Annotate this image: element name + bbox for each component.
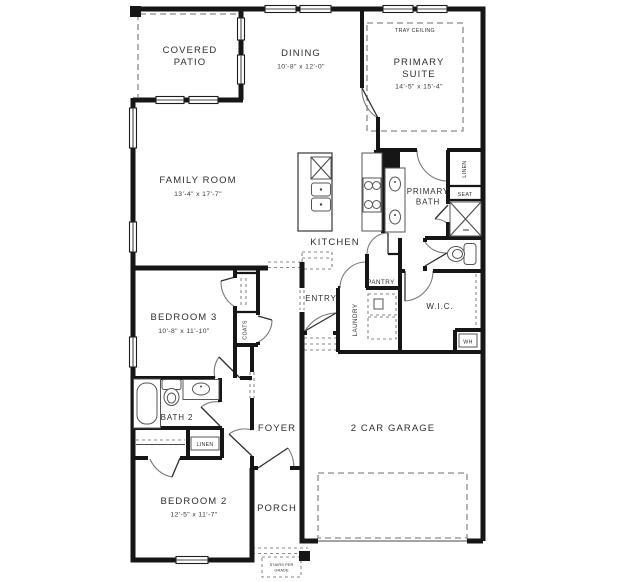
bedroom2-closet-door	[150, 458, 180, 477]
svg-text:FOYER: FOYER	[258, 423, 296, 434]
bedroom3-closet-door	[221, 277, 235, 307]
svg-text:ENTRY: ENTRY	[305, 294, 336, 303]
closet-label-coats: COATS	[243, 320, 249, 340]
door-swings	[150, 88, 448, 477]
svg-text:SEAT: SEAT	[458, 192, 473, 198]
front-door	[258, 448, 294, 468]
closet-label-linen-hall: LINEN	[196, 442, 213, 448]
room-label-porch: PORCH	[257, 503, 297, 514]
room-label-family-room: FAMILY ROOM 13'-4" x 17'-7"	[159, 175, 236, 198]
shower-door	[435, 205, 448, 224]
bedroom2-window	[176, 557, 208, 564]
svg-text:PORCH: PORCH	[257, 503, 297, 514]
room-label-dining: DINING 10'-8" x 12'-0"	[277, 48, 325, 71]
svg-text:PRIMARY: PRIMARY	[394, 57, 445, 68]
garage-door-outline	[318, 473, 467, 538]
kitchen-island	[298, 153, 332, 231]
room-label-bath2: BATH 2	[161, 413, 194, 422]
svg-text:PANTRY: PANTRY	[367, 279, 395, 286]
bedroom3-closet-rod	[241, 278, 246, 308]
bath2-toilet	[162, 380, 181, 406]
closet-label-linen-primary: LINEN	[462, 160, 468, 177]
dryer-outline	[368, 317, 396, 339]
svg-text:COATS: COATS	[243, 320, 249, 340]
floor-plan: COVERED PATIO DINING 10'-8" x 12'-0" TRA…	[0, 0, 617, 582]
label-water-heater: WH	[463, 340, 472, 346]
toilet-room-door	[425, 242, 447, 266]
room-label-covered-patio: COVERED PATIO	[163, 45, 218, 68]
pantry-door	[367, 233, 388, 254]
svg-text:GRADE: GRADE	[274, 568, 289, 573]
primary-suite-door	[362, 88, 378, 118]
cased-opening-entry	[300, 290, 304, 310]
primary-bath-door	[417, 150, 447, 181]
svg-text:BATH: BATH	[416, 198, 440, 207]
svg-text:10'-8" x 11'-10": 10'-8" x 11'-10"	[158, 328, 210, 335]
bedroom2-door	[229, 429, 252, 456]
label-stairs: STAIRS PER GRADE	[270, 562, 294, 573]
svg-text:DINING: DINING	[281, 48, 321, 59]
svg-text:SUITE: SUITE	[402, 69, 435, 80]
svg-text:STAIRS PER: STAIRS PER	[270, 562, 294, 567]
svg-text:14'-5" x 15'-4": 14'-5" x 15'-4"	[395, 84, 443, 91]
svg-text:LAUNDRY: LAUNDRY	[352, 304, 359, 337]
optional-cabinet-outline	[302, 252, 332, 269]
room-label-bedroom2: BEDROOM 2 12'-5" x 11'-7"	[161, 496, 228, 519]
bathtub	[134, 379, 161, 428]
coats-door	[258, 316, 272, 342]
room-label-pantry: PANTRY	[367, 279, 395, 286]
room-label-primary-suite: TRAY CEILING PRIMARY SUITE 14'-5" x 15'-…	[394, 28, 445, 91]
svg-text:W.I.C.: W.I.C.	[426, 302, 453, 311]
bath2-door	[201, 402, 220, 426]
svg-text:WH: WH	[463, 340, 472, 346]
svg-text:LINEN: LINEN	[196, 442, 213, 448]
porch-post	[299, 551, 310, 561]
laundry-door	[340, 262, 366, 288]
range	[363, 178, 381, 212]
patio-post	[130, 6, 141, 17]
floor-plan-drawing: COVERED PATIO DINING 10'-8" x 12'-0" TRA…	[0, 0, 617, 582]
kitchen-counter	[362, 153, 382, 231]
svg-text:LINEN: LINEN	[462, 160, 468, 177]
primary-toilet	[448, 244, 477, 265]
svg-text:2 CAR GARAGE: 2 CAR GARAGE	[351, 423, 435, 434]
labels: COVERED PATIO DINING 10'-8" x 12'-0" TRA…	[151, 28, 473, 573]
svg-text:BATH 2: BATH 2	[161, 413, 194, 422]
garage-entry-door	[305, 313, 336, 331]
label-seat: SEAT	[458, 192, 473, 198]
cased-opening-family	[268, 262, 300, 268]
room-label-laundry: LAUNDRY	[352, 304, 359, 337]
svg-text:12'-5" x 11'-7": 12'-5" x 11'-7"	[170, 512, 217, 519]
wic-door	[405, 271, 433, 301]
svg-text:KITCHEN: KITCHEN	[310, 237, 359, 248]
svg-text:10'-8" x 12'-0": 10'-8" x 12'-0"	[277, 64, 325, 71]
svg-text:COVERED: COVERED	[163, 45, 218, 56]
room-label-foyer: FOYER	[258, 423, 296, 434]
primary-vanity	[385, 168, 405, 232]
cased-opening-foyer	[250, 372, 254, 398]
shower	[450, 202, 481, 236]
room-label-bedroom3: BEDROOM 3 10'-8" x 11'-10"	[151, 312, 218, 335]
svg-text:BEDROOM 3: BEDROOM 3	[151, 312, 218, 323]
room-label-kitchen: KITCHEN	[310, 237, 359, 248]
svg-text:BEDROOM 2: BEDROOM 2	[161, 496, 228, 507]
room-label-entry: ENTRY	[305, 294, 336, 303]
washer-detail	[374, 299, 383, 309]
room-label-garage: 2 CAR GARAGE	[351, 423, 435, 434]
bath2-vanity	[183, 380, 219, 400]
svg-text:PATIO: PATIO	[174, 57, 207, 68]
svg-text:FAMILY ROOM: FAMILY ROOM	[159, 175, 236, 186]
tray-ceiling-label: TRAY CEILING	[395, 28, 435, 34]
room-label-primary-bath: PRIMARY BATH	[407, 187, 450, 207]
svg-text:PRIMARY: PRIMARY	[407, 187, 450, 196]
room-label-wic: W.I.C.	[426, 302, 453, 311]
svg-text:13'-4" x 17'-7": 13'-4" x 17'-7"	[174, 191, 222, 198]
bench-dashes	[304, 338, 336, 350]
